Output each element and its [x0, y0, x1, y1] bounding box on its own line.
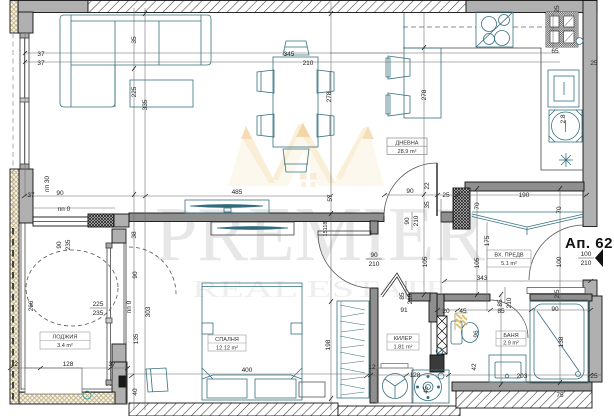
- svg-text:БАНЯ: БАНЯ: [503, 333, 518, 339]
- svg-text:ВХ. ПРЕДВ: ВХ. ПРЕДВ: [494, 253, 524, 259]
- svg-text:278: 278: [326, 91, 333, 102]
- svg-text:91: 91: [400, 307, 408, 314]
- svg-text:37: 37: [27, 192, 35, 199]
- svg-text:12.12 m²: 12.12 m²: [216, 346, 238, 352]
- svg-text:42: 42: [471, 363, 478, 371]
- svg-text:343: 343: [477, 275, 488, 282]
- svg-text:ДНЕВНА: ДНЕВНА: [395, 141, 418, 147]
- svg-text:135: 135: [133, 333, 140, 344]
- svg-text:90: 90: [370, 252, 378, 259]
- svg-text:40: 40: [132, 388, 139, 396]
- svg-text:2.9 m²: 2.9 m²: [503, 341, 519, 347]
- svg-text:90: 90: [551, 306, 559, 313]
- svg-text:35: 35: [424, 201, 431, 209]
- svg-text:175: 175: [484, 235, 491, 246]
- svg-text:100: 100: [556, 256, 563, 267]
- svg-text:37: 37: [37, 51, 45, 58]
- svg-text:25: 25: [590, 373, 598, 380]
- svg-text:85: 85: [497, 299, 504, 307]
- svg-text:210: 210: [407, 293, 414, 304]
- svg-text:2.5: 2.5: [554, 289, 561, 298]
- svg-text:5.1 m²: 5.1 m²: [501, 261, 517, 267]
- svg-text:37: 37: [37, 60, 45, 67]
- svg-text:303: 303: [145, 306, 152, 317]
- svg-text:105: 105: [422, 256, 429, 267]
- svg-text:СПАЛНЯ: СПАЛНЯ: [215, 337, 239, 343]
- svg-text:190: 190: [519, 192, 530, 199]
- svg-text:345: 345: [284, 51, 295, 58]
- svg-text:65: 65: [551, 48, 559, 55]
- svg-text:70: 70: [556, 206, 563, 214]
- svg-text:128: 128: [63, 361, 74, 368]
- svg-text:25: 25: [442, 192, 450, 199]
- svg-text:ЛОДЖИЯ: ЛОДЖИЯ: [53, 335, 78, 341]
- svg-text:28.9 m²: 28.9 m²: [398, 149, 417, 155]
- svg-text:400: 400: [242, 367, 253, 374]
- svg-text:138: 138: [558, 336, 565, 347]
- svg-text:210: 210: [581, 260, 592, 267]
- svg-text:235: 235: [93, 310, 104, 317]
- svg-text:35: 35: [131, 36, 138, 44]
- svg-text:85: 85: [497, 308, 505, 315]
- svg-text:128: 128: [410, 372, 421, 379]
- svg-text:198: 198: [325, 339, 332, 350]
- svg-text:15118: 15118: [323, 222, 329, 237]
- svg-text:90: 90: [56, 241, 63, 249]
- svg-text:266: 266: [28, 300, 35, 311]
- svg-text:25: 25: [554, 5, 561, 13]
- svg-text:70: 70: [474, 202, 481, 210]
- svg-text:КИЛЕР: КИЛЕР: [394, 336, 413, 342]
- svg-text:20: 20: [442, 308, 450, 315]
- svg-text:90: 90: [56, 190, 64, 197]
- svg-text:90: 90: [132, 271, 139, 279]
- svg-text:Ап. 62: Ап. 62: [565, 235, 613, 252]
- svg-text:пп 0: пп 0: [58, 206, 71, 213]
- svg-text:22: 22: [424, 182, 431, 190]
- svg-text:37: 37: [108, 361, 116, 368]
- svg-text:278: 278: [421, 89, 428, 100]
- svg-text:2: 2: [14, 361, 18, 368]
- svg-text:75: 75: [556, 392, 564, 399]
- svg-text:90: 90: [404, 217, 411, 225]
- svg-text:85: 85: [399, 292, 406, 300]
- svg-text:45: 45: [423, 386, 430, 394]
- svg-text:100: 100: [581, 251, 592, 258]
- svg-text:203: 203: [517, 373, 528, 380]
- svg-text:1.81 m²: 1.81 m²: [394, 345, 413, 351]
- svg-text:пп 0: пп 0: [126, 300, 133, 313]
- svg-text:210: 210: [369, 261, 380, 268]
- svg-text:335: 335: [142, 99, 149, 110]
- svg-text:45: 45: [459, 308, 467, 315]
- svg-text:90: 90: [406, 188, 414, 195]
- svg-text:235: 235: [65, 239, 72, 250]
- svg-text:225: 225: [93, 301, 104, 308]
- svg-text:38: 38: [131, 231, 138, 239]
- svg-text:пп 30: пп 30: [44, 176, 51, 192]
- svg-text:3.4 m²: 3.4 m²: [57, 343, 73, 349]
- svg-text:12: 12: [368, 364, 376, 371]
- svg-text:210: 210: [303, 60, 314, 67]
- svg-text:96: 96: [473, 330, 480, 338]
- svg-text:57: 57: [327, 194, 334, 202]
- svg-text:PREMIER: PREMIER: [155, 191, 486, 277]
- svg-text:225: 225: [131, 86, 138, 97]
- svg-text:210: 210: [506, 297, 513, 308]
- svg-text:2.8: 2.8: [560, 114, 567, 123]
- svg-text:210: 210: [413, 215, 420, 226]
- svg-text:105: 105: [474, 257, 481, 268]
- svg-text:25: 25: [590, 60, 598, 67]
- svg-text:485: 485: [232, 189, 243, 196]
